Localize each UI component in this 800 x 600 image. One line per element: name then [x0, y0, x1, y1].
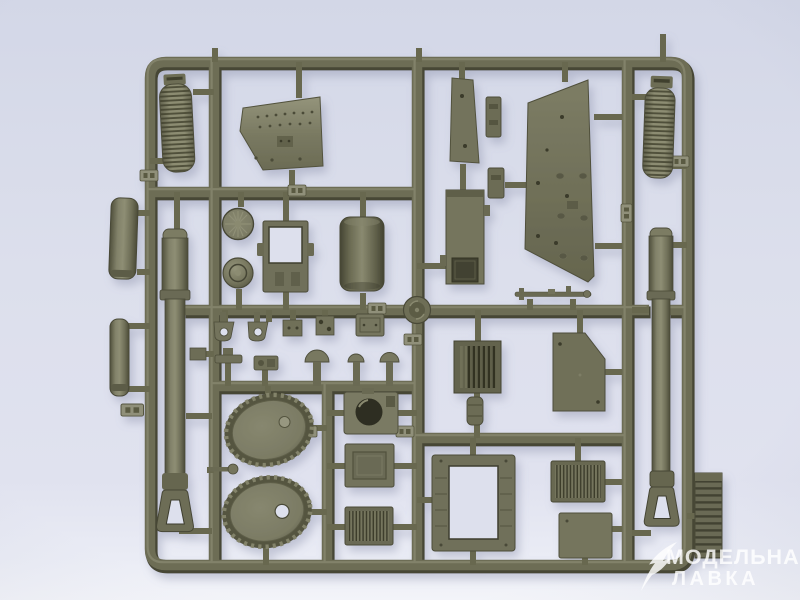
photo-vignette: [0, 0, 800, 600]
part-small-bracket-strip-1: [486, 97, 501, 137]
part-bracket-plate-2: [316, 316, 334, 335]
part-small-box-left: [190, 348, 206, 360]
sprue-photo-canvas: МОДЕЛЬНАЯ ЛАВКА: [0, 0, 800, 600]
part-hatch-ring: [404, 297, 431, 324]
part-recoil-cylinder-long: [110, 319, 129, 396]
part-louvered-box: [454, 341, 501, 393]
part-mantlet-drum: [340, 217, 384, 291]
part-engine-hatch-frame: [432, 455, 515, 551]
part-wide-bracket-plate: [356, 314, 384, 336]
part-recessed-panel: [345, 444, 394, 487]
part-spoked-idler-wheel: [223, 209, 254, 240]
watermark-text-line1: МОДЕЛЬНАЯ: [666, 545, 800, 569]
part-hatch-ring-plate: [344, 388, 398, 434]
photo-model-kit-sprue: МОДЕЛЬНАЯ ЛАВКА: [0, 0, 800, 600]
part-grille-panel: [551, 461, 605, 502]
part-small-box-2: [254, 356, 278, 370]
part-bracket-plate-1: [283, 320, 302, 336]
watermark-text-line2: ЛАВКА: [672, 568, 759, 590]
part-hatch-frame: [257, 221, 314, 292]
part-recoil-cylinder-short: [109, 198, 139, 280]
part-small-bracket-strip-2: [488, 168, 504, 198]
part-flat-access-plate: [559, 513, 612, 558]
part-small-post: [467, 397, 483, 425]
part-large-hull-side-plate: [525, 80, 594, 282]
part-dome-wheel-hub: [223, 258, 253, 288]
part-superstructure-box: [440, 190, 490, 284]
part-louvered-panel: [345, 507, 393, 545]
